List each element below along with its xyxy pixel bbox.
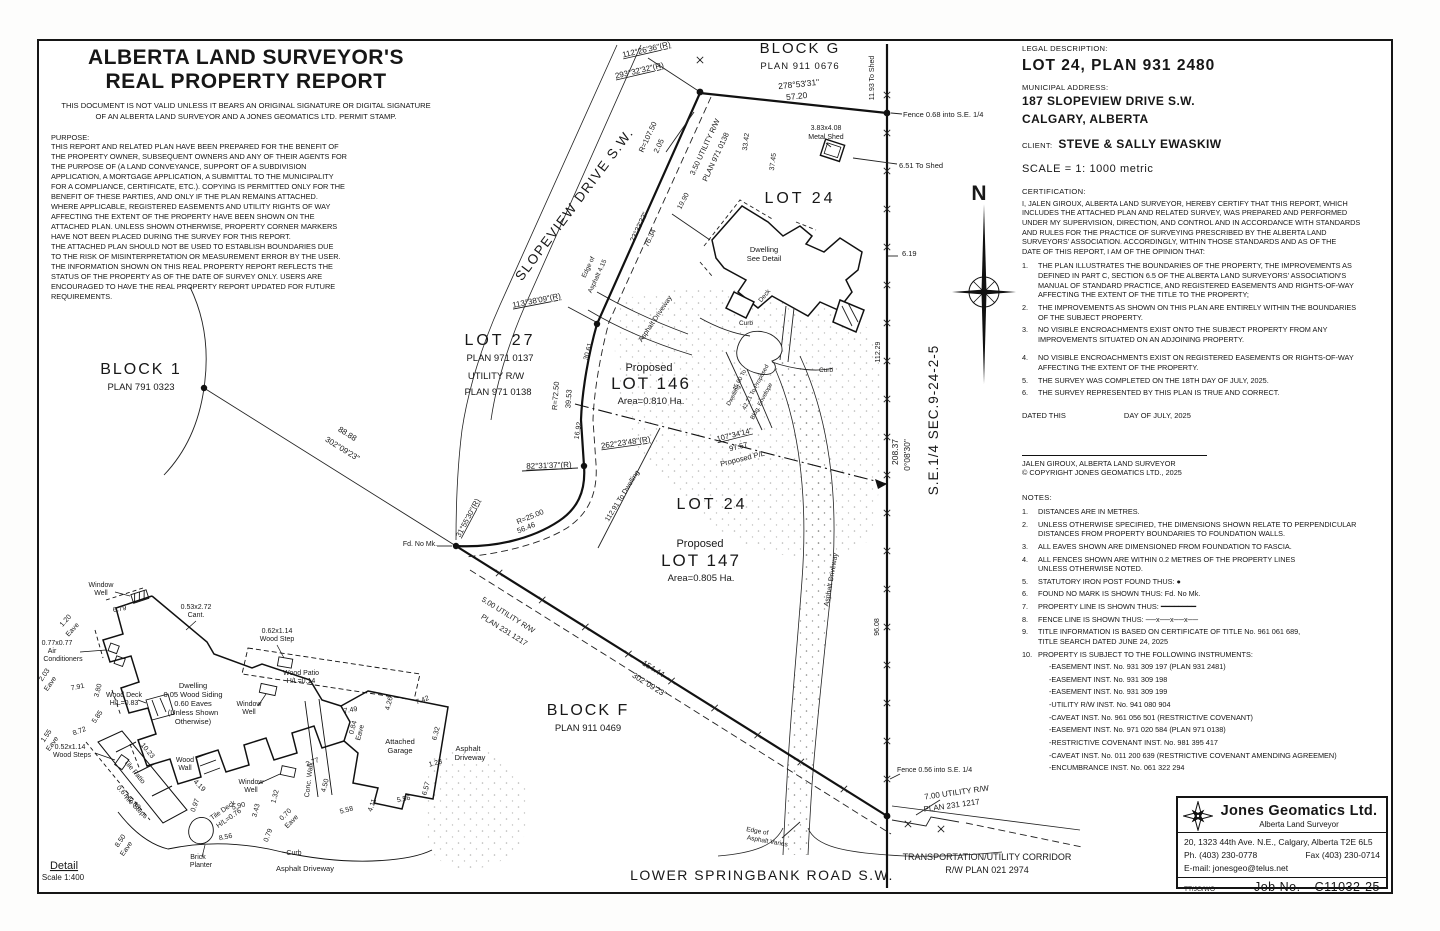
plan-label: Asphalt	[455, 744, 481, 753]
plan-label: Wood	[176, 757, 194, 764]
plan-label: 0.79	[263, 828, 274, 843]
list-item: 9.TITLE INFORMATION IS BASED ON CERTIFIC…	[1022, 627, 1386, 646]
surveyor-name: JALEN GIROUX, ALBERTA LAND SURVEYOR	[1022, 459, 1386, 469]
plan-label: 7.91	[70, 683, 85, 693]
firm-initials: TT/JG/WO	[1184, 886, 1215, 893]
rpr-sheet-page: 112°26'36"(R)293°32'32"(R)BLOCK GPLAN 91…	[0, 0, 1440, 931]
plan-label: Proposed	[625, 362, 672, 374]
plan-label: S.E.1/4 SEC.9-24-2-5	[926, 345, 941, 496]
plan-label: 4.11	[367, 798, 378, 813]
plan-label: Cant.	[188, 612, 205, 619]
plan-label: 33.42	[742, 133, 751, 151]
plan-label: SLOPEVIEW DRIVE S.W.	[512, 125, 636, 283]
compass-logo-icon	[1183, 801, 1213, 831]
plan-label: Tile Patio	[122, 759, 146, 786]
list-item: 5.THE SURVEY WAS COMPLETED ON THE 18TH D…	[1022, 376, 1386, 386]
plan-label: LOT 27	[464, 332, 535, 349]
plan-label: N	[971, 182, 986, 205]
plan-label: 7.42	[415, 695, 430, 706]
plan-label: 31°55'30"(R)	[454, 497, 482, 539]
list-item: 7.PROPERTY LINE IS SHOWN THUS: ━━━━━━━━	[1022, 602, 1386, 612]
surveyor-firm-box: Jones Geomatics Ltd. Alberta Land Survey…	[1176, 796, 1388, 889]
plan-label: Scale 1:400	[42, 873, 85, 882]
plan-label: 0.05 Wood Siding	[163, 690, 222, 699]
list-item: -UTILITY R/W INST. No. 941 080 904	[1049, 700, 1386, 710]
title-data-panel: LEGAL DESCRIPTION: LOT 24, PLAN 931 2480…	[1022, 44, 1386, 776]
plan-label: Brick	[190, 854, 206, 861]
list-item: -CAVEAT INST. No. 961 056 501 (RESTRICTI…	[1049, 713, 1386, 723]
plan-label: BLOCK 1	[100, 361, 182, 378]
list-item: 6.FOUND NO MARK IS SHOWN THUS: Fd. No Mk…	[1022, 589, 1386, 599]
list-item: 5.STATUTORY IRON POST FOUND THUS: ●	[1022, 577, 1386, 587]
plan-label: LOT 24	[764, 190, 835, 207]
plan-label: 113°38'09"(R)	[511, 291, 561, 309]
certification-text: I, JALEN GIROUX, ALBERTA LAND SURVEYOR, …	[1022, 199, 1386, 257]
instruments-list: -EASEMENT INST. No. 931 309 197 (PLAN 93…	[1049, 662, 1386, 773]
list-item: 6.THE SURVEY REPRESENTED BY THIS PLAN IS…	[1022, 388, 1386, 398]
plan-label: 4.26	[384, 696, 394, 711]
plan-label: 4.19	[192, 779, 207, 794]
plan-label: Well	[94, 590, 108, 597]
plan-label: Wood Steps	[53, 752, 92, 759]
plan-label: 0.62x1.14	[262, 628, 293, 635]
plan-label: 19.90	[676, 192, 690, 211]
plan-label: 82°31'37"(R)	[526, 460, 572, 471]
plan-label: BLOCK F	[547, 702, 629, 719]
plan-label: 1.32	[270, 789, 280, 804]
plan-label: 0.97	[190, 798, 201, 813]
firm-email: E-mail: jonesgeo@telus.net	[1184, 862, 1380, 875]
municipal-address-label: MUNICIPAL ADDRESS:	[1022, 83, 1386, 93]
plan-label: Detail	[50, 860, 78, 872]
plan-label: Wall	[178, 765, 192, 772]
plan-label: Well	[244, 787, 258, 794]
plan-label: 5.85	[91, 709, 105, 724]
list-item: -RESTRICTIVE COVENANT INST. No. 981 395 …	[1049, 738, 1386, 748]
plan-label: 6.32	[431, 726, 441, 741]
plan-label: 6.19	[902, 249, 917, 258]
list-item: 2.THE IMPROVEMENTS AS SHOWN ON THIS PLAN…	[1022, 303, 1386, 322]
dated-line: DATED THIS DAY OF JULY, 2025	[1022, 411, 1386, 421]
plan-label: Wood Step	[260, 636, 295, 643]
plan-label: 5.58	[339, 805, 354, 815]
plan-label: PLAN 911 0676	[760, 61, 839, 72]
plan-label: LOT 146	[611, 374, 691, 393]
list-item: -CAVEAT INST. No. 011 200 639 (RESTRICTI…	[1049, 751, 1386, 761]
plan-label: Attached	[385, 737, 415, 746]
plan-label: 0°08'30"	[902, 439, 912, 471]
plan-label: LOT 147	[661, 551, 741, 570]
list-item: -ENCUMBRANCE INST. No. 061 322 294	[1049, 763, 1386, 773]
notes-label: NOTES:	[1022, 493, 1386, 503]
plan-label: R/W PLAN 021 2974	[945, 865, 1029, 875]
list-item: -EASEMENT INST. No. 971 020 584 (PLAN 97…	[1049, 725, 1386, 735]
plan-label: Curb	[286, 850, 301, 857]
list-item: -EASEMENT INST. No. 931 309 199	[1049, 687, 1386, 697]
plan-label: (Unless Shown	[168, 708, 218, 717]
copyright-line: © COPYRIGHT JONES GEOMATICS LTD., 2025	[1022, 468, 1386, 478]
plan-label: Dwelling	[750, 245, 778, 254]
list-item: 8.FENCE LINE IS SHOWN THUS: ──x──x──x──	[1022, 615, 1386, 625]
list-item: 2.UNLESS OTHERWISE SPECIFIED, THE DIMENS…	[1022, 520, 1386, 539]
dated-prefix: DATED THIS	[1022, 411, 1066, 421]
signature-rule	[1022, 455, 1207, 456]
plan-label: 11.93 To Shed	[869, 56, 876, 101]
firm-subtitle: Alberta Land Surveyor	[1218, 820, 1380, 829]
plan-label: Metal Shed	[808, 134, 844, 141]
metal-shed	[820, 139, 844, 161]
plan-label: Air	[48, 648, 57, 655]
client-name: STEVE & SALLY EWASKIW	[1058, 137, 1221, 153]
plan-label: Proposed	[676, 538, 723, 550]
client-label: CLIENT:	[1022, 141, 1052, 151]
notes-list: 1.DISTANCES ARE IN METRES.2.UNLESS OTHER…	[1022, 507, 1386, 659]
certification-opinions: 1.THE PLAN ILLUSTRATES THE BOUNDARIES OF…	[1022, 261, 1386, 398]
firm-phone: Ph. (403) 230-0778	[1184, 849, 1257, 862]
plan-label: LOT 24	[676, 496, 747, 513]
municipal-address-line1: 187 SLOPEVIEW DRIVE S.W.	[1022, 93, 1386, 110]
plan-label: Tile Steps	[122, 794, 149, 821]
plan-label: Planter	[190, 862, 213, 869]
plan-label: 112°26'36"(R)	[621, 40, 671, 60]
firm-address: 20, 1323 44th Ave. N.E., Calgary, Albert…	[1184, 836, 1380, 849]
plan-label: Driveway	[455, 753, 486, 762]
plan-label: 7.00 UTILITY R/W	[924, 783, 990, 801]
plan-label: Area=0.810 Ha.	[618, 396, 685, 407]
list-item: -EASEMENT INST. No. 931 309 197 (PLAN 93…	[1049, 662, 1386, 672]
plan-label: PLAN 971 0138	[464, 387, 531, 398]
plan-label: 3.43	[251, 803, 261, 818]
plan-label: 2.05	[652, 137, 666, 154]
legal-description-label: LEGAL DESCRIPTION:	[1022, 44, 1386, 54]
list-item: 1.DISTANCES ARE IN METRES.	[1022, 507, 1386, 517]
list-item: 10.PROPERTY IS SUBJECT TO THE FOLLOWING …	[1022, 650, 1386, 660]
plan-label: 6.51 To Shed	[899, 161, 943, 170]
plan-label: 8.72	[72, 726, 87, 737]
plan-label: 8.56	[218, 833, 233, 843]
plan-label: Well	[242, 709, 256, 716]
plan-label: Fence 0.68 into S.E. 1/4	[903, 110, 983, 119]
plan-label: H/L=0.83	[110, 700, 139, 707]
plan-label: Area=0.805 Ha.	[668, 573, 735, 584]
plan-label: PLAN 911 0469	[555, 723, 621, 734]
plan-label: H/L=0.14	[287, 678, 316, 685]
plan-label: 278°53'31"	[778, 77, 820, 91]
plan-label: 3.83x4.08	[811, 125, 842, 132]
list-item: 4.ALL FENCES SHOWN ARE WITHIN 0.2 METRES…	[1022, 555, 1386, 574]
plan-label: 7.49	[343, 706, 358, 715]
title-block: ALBERTA LAND SURVEYOR'S REAL PROPERTY RE…	[45, 46, 447, 302]
municipal-address-line2: CALGARY, ALBERTA	[1022, 111, 1386, 128]
firm-name: Jones Geomatics Ltd.	[1218, 803, 1380, 819]
plan-label: 57.20	[786, 90, 808, 102]
report-title: ALBERTA LAND SURVEYOR'S REAL PROPERTY RE…	[45, 46, 447, 94]
plan-label: Dwelling	[179, 681, 207, 690]
plan-label: 293°32'32"(R)	[614, 61, 665, 81]
plan-label: 5.56	[396, 795, 411, 805]
plan-label: 3.80	[93, 683, 103, 698]
job-number-value: C11032-25	[1315, 880, 1380, 894]
plan-label: 4.50	[320, 778, 330, 793]
plan-label: 76.34	[642, 228, 658, 249]
plan-label: Garage	[387, 746, 412, 755]
plan-label: 39.53	[563, 389, 573, 408]
plan-label: 37.45	[769, 153, 778, 171]
purpose-text: THIS REPORT AND RELATED PLAN HAVE BEEN P…	[51, 142, 447, 302]
list-item: 4.NO VISIBLE ENCROACHMENTS EXIST ON REGI…	[1022, 353, 1386, 372]
plan-label: Otherwise)	[175, 717, 212, 726]
purpose-heading: PURPOSE:	[51, 133, 447, 142]
plan-label: 88.88	[336, 425, 358, 444]
list-item: 1.THE PLAN ILLUSTRATES THE BOUNDARIES OF…	[1022, 261, 1386, 300]
signature-block: JALEN GIROUX, ALBERTA LAND SURVEYOR © CO…	[1022, 455, 1386, 478]
firm-fax: Fax (403) 230-0714	[1305, 849, 1380, 862]
plan-label: Curb	[819, 367, 833, 374]
plan-label: 0.77x0.77	[42, 640, 73, 647]
plan-label: Asphalt Driveway	[276, 864, 334, 873]
plan-label: Wood Deck	[106, 692, 143, 699]
list-item: 3.NO VISIBLE ENCROACHMENTS EXIST ONTO TH…	[1022, 325, 1386, 344]
plan-label: Conditioners	[43, 656, 83, 663]
job-number-label: Job No.	[1254, 880, 1301, 894]
north-arrow-icon	[952, 204, 1016, 384]
plan-label: UTILITY R/W	[468, 371, 524, 382]
plan-label: 0.60 Eaves	[174, 699, 212, 708]
plan-label: TRANSPORTATION/UTILITY CORRIDOR	[903, 852, 1072, 862]
plan-label: BLOCK G	[760, 40, 841, 57]
plan-label: 112.29	[875, 341, 882, 362]
plan-label: 208.37	[890, 439, 900, 465]
list-item: -EASEMENT INST. No. 931 309 198	[1049, 675, 1386, 685]
certification-label: CERTIFICATION:	[1022, 187, 1386, 197]
plan-label: Window	[237, 701, 263, 708]
plan-label: Window	[239, 779, 265, 786]
plan-label: Curb	[739, 320, 753, 327]
validity-disclaimer: THIS DOCUMENT IS NOT VALID UNLESS IT BEA…	[45, 101, 447, 122]
plan-label: Fd. No Mk.	[403, 541, 437, 548]
plan-label: PLAN 971 0137	[466, 353, 533, 364]
plan-label: PLAN 791 0323	[107, 382, 174, 393]
plan-label: 30.61	[583, 342, 594, 361]
plan-label: 96.08	[874, 618, 881, 636]
dated-suffix: DAY OF JULY, 2025	[1124, 411, 1191, 421]
scale-statement: SCALE = 1: 1000 metric	[1022, 162, 1386, 177]
legal-description-value: LOT 24, PLAN 931 2480	[1022, 56, 1386, 76]
plan-label: 0.52x1.14	[55, 744, 86, 751]
list-item: 3.ALL EAVES SHOWN ARE DIMENSIONED FROM F…	[1022, 542, 1386, 552]
plan-label: 0.53x2.72	[181, 604, 212, 611]
plan-label: 6.79	[112, 605, 127, 614]
plan-label: Window	[89, 582, 115, 589]
plan-label: R=72.50	[550, 381, 561, 410]
plan-label: LOWER SPRINGBANK ROAD S.W.	[630, 867, 894, 883]
plan-label: Fence 0.56 into S.E. 1/4	[897, 767, 972, 774]
plan-label: Wood Patio	[283, 670, 319, 677]
plan-label: 112.91 To Dwelling	[604, 469, 641, 522]
plan-label: See Detail	[747, 254, 782, 263]
